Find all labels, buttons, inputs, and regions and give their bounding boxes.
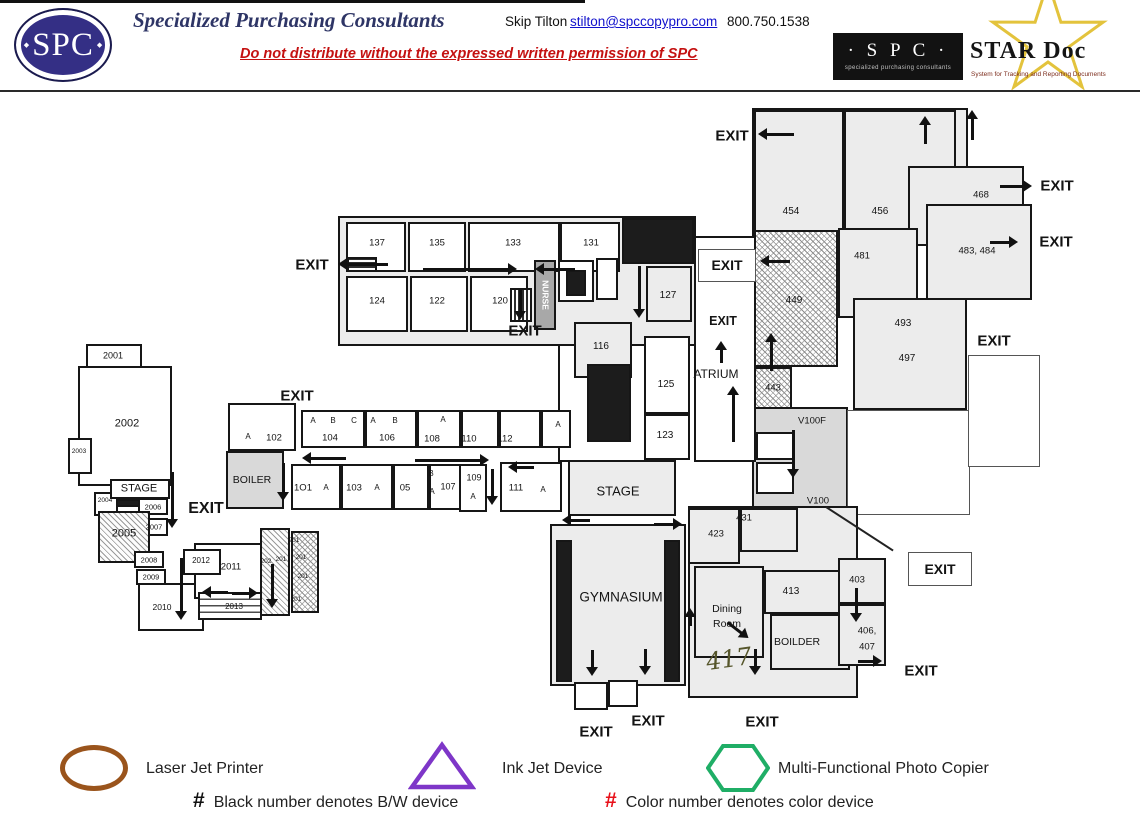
direction-arrow — [716, 341, 726, 363]
exit-label: EXIT — [745, 715, 778, 730]
room-label-2004: 2004 — [98, 498, 112, 505]
direction-arrow — [535, 264, 575, 274]
room-label-127: 127 — [660, 291, 677, 301]
white-room — [968, 355, 1040, 467]
black-hash-symbol: # — [193, 789, 205, 813]
legend-note-bw: # Black number denotes B/W device — [193, 789, 458, 813]
room-102 — [228, 403, 296, 451]
room-2003 — [68, 438, 92, 474]
white-room — [847, 410, 970, 515]
room-label-gymnasium: GYMNASIUM — [579, 590, 662, 604]
room-label-stage: STAGE — [596, 485, 639, 498]
room-label-a: A — [540, 486, 545, 494]
room-label-449: 449 — [786, 296, 803, 306]
room-label-133: 133 — [505, 238, 521, 248]
room-label-2012: 2012 — [192, 557, 210, 565]
room-label-c: C — [351, 417, 357, 425]
laser-printer-symbol — [60, 745, 128, 791]
room-label-102: 102 — [266, 433, 282, 443]
room-label-2010: 2010 — [153, 603, 172, 612]
room-label-2008: 2008 — [141, 556, 158, 564]
direction-arrow — [167, 472, 177, 528]
room-label-116: 116 — [593, 342, 609, 352]
room-label-120: 120 — [492, 296, 508, 306]
legend-note-bw-text: Black number denotes B/W device — [214, 794, 459, 812]
room-label-125: 125 — [658, 380, 675, 390]
room-label-106: 106 — [379, 433, 395, 443]
room-label-a: A — [555, 421, 560, 429]
room-label-201: 201 — [291, 597, 302, 604]
nw-dark-block — [622, 218, 694, 264]
room-label-2003: 2003 — [72, 449, 86, 456]
exit-label: EXIT — [715, 129, 748, 144]
exit-label: EXIT — [709, 315, 737, 328]
legend: Laser Jet Printer Ink Jet Device Multi-F… — [0, 735, 1140, 828]
room-label-201: 201 — [276, 557, 287, 564]
room-label-a: A — [310, 417, 315, 425]
direction-arrow — [176, 558, 186, 620]
direction-arrow — [685, 608, 695, 626]
room-label-406: 406, — [858, 626, 877, 636]
room-125 — [644, 336, 690, 414]
direction-arrow — [515, 290, 525, 320]
direction-arrow — [415, 455, 489, 465]
room-label-413: 413 — [783, 587, 800, 597]
direction-arrow — [338, 259, 388, 269]
room-label-v100f: V100F — [798, 416, 826, 426]
exit-label: EXIT — [631, 714, 664, 729]
direction-arrow — [267, 564, 277, 608]
exit-label: EXIT — [579, 725, 612, 740]
room-label-403: 403 — [849, 575, 865, 585]
direction-arrow — [508, 462, 534, 472]
direction-arrow — [562, 515, 590, 525]
floorplan: EXITEXITEXITEXITEXITEXITEXITEXITEXITEXIT… — [0, 0, 1140, 828]
room-label-431: 431 — [736, 513, 752, 523]
room-label-201: 201 — [289, 538, 300, 545]
direction-arrow — [920, 116, 930, 144]
direction-arrow — [1000, 181, 1032, 191]
exit-label: EXIT — [977, 334, 1010, 349]
direction-arrow — [202, 587, 228, 597]
room-label-493: 493 — [895, 319, 912, 329]
room-label-boilder: BOILDER — [774, 637, 820, 648]
room-label-2002: 2002 — [115, 419, 139, 430]
room-label-468: 468 — [973, 190, 989, 200]
room-label-a: A — [470, 493, 475, 501]
exit-label: EXIT — [508, 324, 541, 339]
direction-arrow — [634, 266, 644, 318]
room-label-b: B — [330, 417, 335, 425]
room-label-456: 456 — [872, 207, 889, 217]
room-label-2001: 2001 — [103, 352, 123, 361]
stairwell-dark — [587, 364, 631, 442]
room-a-right — [541, 410, 571, 448]
room-label-a: A — [323, 484, 328, 492]
room-label-123: 123 — [657, 431, 674, 441]
room-label-room: Room — [713, 619, 741, 630]
room-label-2009: 2009 — [143, 573, 160, 581]
direction-arrow — [302, 453, 346, 463]
gym-lobby — [574, 682, 608, 710]
direction-arrow — [858, 656, 882, 666]
room-label-boiler: BOILER — [233, 475, 272, 486]
direction-arrow — [587, 650, 597, 676]
room-label-a: A — [245, 433, 250, 441]
room-label-a: A — [374, 484, 379, 492]
direction-arrow — [760, 256, 790, 266]
room-label-483484: 483, 484 — [959, 246, 996, 256]
room-label-122: 122 — [429, 296, 445, 306]
exit-label: EXIT — [1039, 235, 1072, 250]
room-label-b: B — [428, 470, 433, 478]
legend-label-inkjet: Ink Jet Device — [502, 760, 602, 778]
room-label-454: 454 — [783, 207, 800, 217]
direction-arrow — [423, 264, 517, 274]
copier-symbol — [706, 743, 770, 793]
room-label-05: 05 — [400, 483, 411, 493]
room-label-423: 423 — [708, 529, 724, 539]
legend-label-copier: Multi-Functional Photo Copier — [778, 760, 989, 778]
room-label-124: 124 — [369, 296, 385, 306]
room-label-stage: STAGE — [121, 484, 157, 495]
room-label-201: 201 — [296, 555, 307, 562]
room-label-135: 135 — [429, 238, 445, 248]
legend-note-color-text: Color number denotes color device — [626, 794, 874, 812]
direction-arrow — [232, 588, 258, 598]
room-109 — [459, 464, 487, 512]
room-label-2006: 2006 — [145, 503, 162, 511]
direction-arrow — [728, 386, 738, 442]
room-label-137: 137 — [369, 238, 385, 248]
room-label-2007: 2007 — [146, 523, 163, 531]
room-label-a: A — [429, 488, 434, 496]
exit-label: EXIT — [711, 258, 742, 272]
room-label-131: 131 — [583, 238, 599, 248]
exit-label: EXIT — [188, 501, 224, 517]
room-label-a: A — [440, 416, 445, 424]
room-label-108: 108 — [424, 434, 440, 444]
exit-label: EXIT — [924, 562, 955, 576]
small-room — [596, 258, 618, 300]
inkjet-symbol — [408, 741, 476, 791]
direction-arrow — [788, 430, 798, 478]
gym-wall-left — [556, 540, 572, 682]
room-label-443: 443 — [765, 383, 781, 393]
room-label-atrium: ATRIUM — [693, 368, 738, 380]
exit-label: EXIT — [295, 258, 328, 273]
room-label-a: A — [370, 417, 375, 425]
room-label-481: 481 — [854, 251, 870, 261]
red-hash-symbol: # — [605, 789, 617, 813]
gym-wall-right — [664, 540, 680, 682]
legend-label-laser: Laser Jet Printer — [146, 760, 263, 778]
direction-arrow — [851, 588, 861, 622]
room-label-2013: 2013 — [225, 603, 243, 611]
room-label-b: B — [392, 417, 397, 425]
exit-label: EXIT — [904, 664, 937, 679]
room-label-107: 107 — [440, 483, 455, 492]
room-label-1o1: 1O1 — [294, 483, 312, 493]
room-label-112: 112 — [497, 434, 512, 444]
legend-note-color: # Color number denotes color device — [605, 789, 874, 813]
room-label-dining: Dining — [712, 604, 742, 615]
direction-arrow — [758, 129, 794, 139]
room-label-407: 407 — [859, 642, 875, 652]
room-label-497: 497 — [899, 354, 916, 364]
page: ◆ SPC ◆ Specialized Purchasing Consultan… — [0, 0, 1140, 828]
direction-arrow — [654, 519, 682, 529]
room-label-111: 111 — [509, 483, 523, 493]
room-label-417: 417 — [705, 644, 754, 674]
exit-label: EXIT — [1040, 179, 1073, 194]
gym-lobby — [608, 680, 638, 707]
room-label-103: 103 — [346, 483, 362, 493]
room-105 — [393, 464, 429, 510]
room-label-110: 110 — [461, 434, 476, 444]
room-label-2011: 2011 — [221, 562, 241, 572]
room-label-2005: 2005 — [112, 529, 136, 540]
direction-arrow — [967, 110, 977, 140]
direction-arrow — [278, 463, 288, 501]
room-label-104: 104 — [322, 433, 338, 443]
direction-arrow — [766, 333, 776, 371]
direction-arrow — [487, 469, 497, 505]
room-label-202: 202 — [261, 559, 272, 566]
room-label-v100: V100 — [807, 496, 829, 506]
direction-arrow — [640, 649, 650, 675]
room-label-nurse: NURSE — [541, 280, 550, 310]
exit-label: EXIT — [280, 389, 313, 404]
room-label-201: 201 — [298, 574, 309, 581]
room-label-109: 109 — [466, 474, 481, 483]
